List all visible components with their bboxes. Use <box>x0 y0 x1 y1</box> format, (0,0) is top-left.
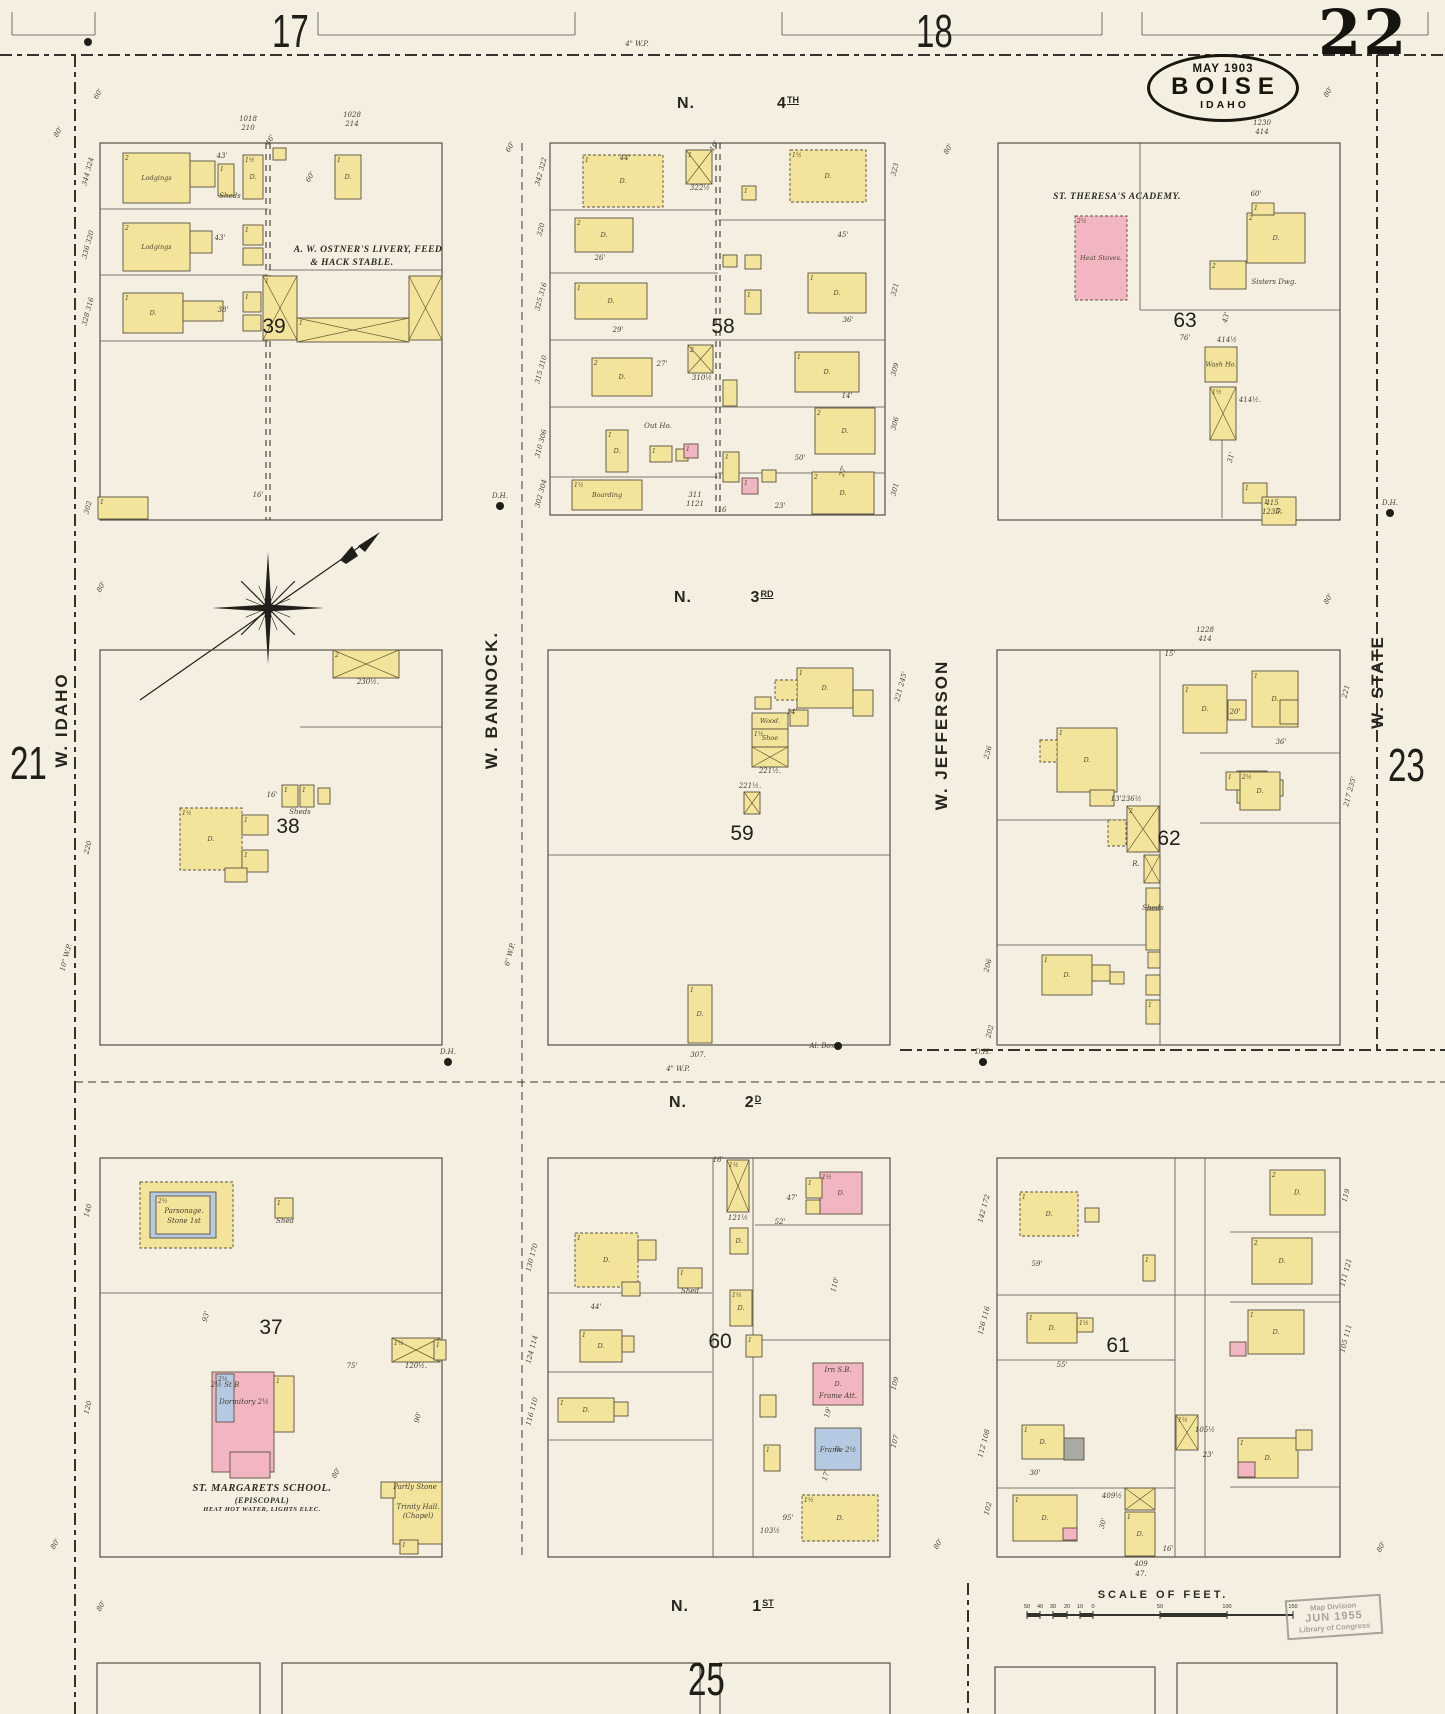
partial-lot-outline <box>1177 1663 1337 1714</box>
building-storey-tag: 1½ <box>1178 1417 1188 1424</box>
map-annotation: 60' <box>92 87 104 100</box>
map-annotation: 23' <box>1202 1451 1214 1459</box>
map-annotation: 17' <box>821 1469 832 1482</box>
compass-ray <box>241 608 268 635</box>
building <box>225 868 247 882</box>
building <box>1064 1438 1084 1460</box>
map-annotation: 110' <box>829 1276 841 1293</box>
st-margarets-school-note: HEAT HOT WATER, LIGHTS ELEC. <box>203 1506 320 1513</box>
building-label: D. <box>343 173 351 181</box>
building-storey-tag: 1 <box>1228 774 1232 781</box>
map-annotation: 80' <box>1375 1540 1387 1553</box>
map-annotation: 59' <box>1032 1260 1043 1268</box>
building <box>1040 740 1057 762</box>
street-label-n-3rd: 3RD <box>751 589 774 607</box>
map-annotation: 320 <box>535 221 546 237</box>
building <box>723 255 737 267</box>
map-annotation: 414 <box>1197 635 1211 643</box>
title-oval: MAY 1903 BOISE IDAHO <box>1147 54 1299 122</box>
building <box>1148 952 1160 968</box>
map-annotation: Frame Att. <box>818 1392 857 1400</box>
map-annotation: 16' <box>713 1156 724 1164</box>
building-label: Wood. <box>760 717 780 725</box>
building-storey-tag: 1 <box>766 1447 770 1454</box>
building-label: D. <box>1271 1328 1279 1336</box>
street-label-w-state: W. STATE <box>1368 635 1388 729</box>
map-annotation: Out Ho. <box>644 422 672 430</box>
building-storey-tag: 1½ <box>792 152 802 159</box>
building-storey-tag: 2 <box>1211 263 1216 270</box>
map-annotation: 415 <box>1264 499 1279 507</box>
building <box>638 1240 656 1260</box>
building-storey-tag: 1 <box>220 166 224 173</box>
map-annotation: Stone 1st <box>167 1217 201 1225</box>
map-annotation: 221½. <box>738 782 761 790</box>
map-annotation: 220 <box>82 839 94 855</box>
map-annotation: Sisters Dwg. <box>1251 278 1296 286</box>
map-annotation: 80' <box>52 125 64 138</box>
map-annotation: 2½ St B <box>210 1381 239 1389</box>
building-storey-tag: 1 <box>744 480 748 487</box>
map-annotation: 202 <box>984 1023 996 1039</box>
street-label-w-bannock: W. BANNOCK. <box>482 631 502 769</box>
building-storey-tag: 1½ <box>1079 1320 1089 1327</box>
map-annotation: 309 <box>889 361 900 377</box>
building-storey-tag: 1½ <box>822 1174 832 1181</box>
building-storey-tag: 1 <box>284 787 288 794</box>
building-storey-tag: 1 <box>436 1342 440 1349</box>
map-annotation: 30' <box>1030 1469 1041 1477</box>
map-annotation: 116 110 <box>524 1396 539 1427</box>
compass-ray <box>268 608 295 635</box>
building-label: D. <box>618 177 626 185</box>
map-annotation: Parsonage. <box>163 1207 203 1215</box>
building-label: D. <box>1082 756 1090 764</box>
building-label: D. <box>206 835 214 843</box>
building-storey-tag: 1 <box>100 499 104 506</box>
building-storey-tag: 1½ <box>245 157 255 164</box>
building-label: D. <box>581 1406 589 1414</box>
map-annotation: 414½. <box>1238 396 1261 404</box>
building <box>853 690 873 716</box>
map-annotation: 112 108 <box>976 1428 991 1459</box>
map-annotation: 322½ <box>690 184 710 192</box>
street-label-n-1st: 1ST <box>752 1598 773 1616</box>
building-label: D. <box>1255 787 1263 795</box>
map-annotation: 1228 <box>1196 626 1214 634</box>
adjacent-sheet-right: 23 <box>1388 742 1425 788</box>
map-annotation: 105 111 <box>1338 1323 1353 1353</box>
building <box>243 248 263 265</box>
map-annotation: 19' <box>823 1406 834 1419</box>
building-storey-tag: 1 <box>686 446 690 453</box>
building <box>98 497 148 519</box>
building-storey-tag: 1 <box>1148 1002 1152 1009</box>
building <box>622 1336 634 1352</box>
street-label-n-3rd-prefix: N. <box>674 589 692 607</box>
building <box>1063 1528 1077 1540</box>
street-label-w-jefferson: W. JEFFERSON <box>932 660 952 811</box>
building-storey-tag: 1 <box>1059 730 1063 737</box>
adjacent-sheet-top-left: 17 <box>272 8 309 54</box>
building-label: D. <box>596 1342 604 1350</box>
building-label: D. <box>833 1380 841 1388</box>
building-storey-tag: 2½ <box>1241 774 1252 781</box>
building-label: Lodgings <box>140 243 172 251</box>
building-storey-tag: 2 <box>813 474 818 481</box>
building-label: D. <box>1135 1530 1143 1538</box>
building-storey-tag: 1 <box>744 188 748 195</box>
ostner-stable-label-line2: & HACK STABLE. <box>310 258 393 268</box>
map-annotation: 80' <box>932 1537 944 1550</box>
building <box>1146 910 1160 950</box>
building <box>1110 972 1124 984</box>
map-annotation: Dormitory 2½ <box>218 1398 269 1406</box>
building-storey-tag: 1½ <box>804 1497 814 1504</box>
street-label-n-2d: 2D <box>745 1094 761 1112</box>
map-annotation: 1121 <box>686 500 704 508</box>
building-label: D. <box>840 427 848 435</box>
building-storey-tag: 1 <box>797 354 801 361</box>
building-storey-tag: 1 <box>608 432 612 439</box>
map-annotation: 142 172 <box>976 1193 991 1224</box>
map-annotation: 328 316 <box>80 296 95 327</box>
map-annotation: 23' <box>774 502 786 510</box>
compass-ray <box>241 581 268 608</box>
scale-bar-tick-label: 20 <box>1064 1604 1070 1610</box>
map-annotation: 102 <box>982 1500 993 1516</box>
library-date-stamp: Map Division JUN 1955 Library of Congres… <box>1285 1594 1384 1641</box>
north-needle-arrow <box>358 532 380 552</box>
building-storey-tag: 1 <box>1029 1315 1033 1322</box>
building <box>723 380 737 406</box>
map-annotation: 414½ <box>1216 336 1237 344</box>
map-annotation: 119 <box>1340 1187 1351 1203</box>
building-storey-tag: 2½ <box>157 1198 168 1205</box>
scale-bar-tick-label: 0 <box>1091 1604 1094 1610</box>
map-annotation: 43' <box>1221 311 1232 325</box>
scale-bar-segment <box>1027 1613 1040 1617</box>
map-annotation: 342 322 <box>533 156 548 187</box>
map-annotation: 80' <box>49 1537 61 1550</box>
map-annotation: 16' <box>708 139 720 152</box>
map-annotation: 90' <box>413 1411 424 1424</box>
map-annotation: 307. <box>690 1051 706 1059</box>
building-storey-tag: 2 <box>593 360 598 367</box>
building-storey-tag: 1 <box>577 1235 581 1242</box>
map-annotation: Shed <box>276 1217 294 1225</box>
building-label: D. <box>617 373 625 381</box>
building-storey-tag: 1 <box>337 157 341 164</box>
building-label: D. <box>1038 1438 1046 1446</box>
sanborn-map-sheet: Lodgings21D.1½D.1Lodgings21D.11111D.11D.… <box>0 0 1445 1714</box>
map-annotation: R. <box>1131 860 1140 868</box>
building-storey-tag: 1 <box>810 275 814 282</box>
map-annotation: 121½ <box>728 1214 748 1222</box>
map-annotation: 30' <box>1098 1517 1109 1530</box>
building-storey-tag: 1 <box>680 1270 684 1277</box>
building <box>1280 700 1298 724</box>
building-storey-tag: 1½ <box>754 731 764 738</box>
building <box>190 161 215 187</box>
building <box>1230 1342 1246 1356</box>
building-storey-tag: 1 <box>652 448 656 455</box>
building-storey-tag: 1 <box>245 294 249 301</box>
building <box>806 1200 820 1214</box>
map-annotation: 60' <box>304 170 316 183</box>
map-annotation: 80' <box>95 1599 107 1612</box>
building-storey-tag: 2 <box>1253 1240 1258 1247</box>
map-canvas: Lodgings21D.1½D.1Lodgings21D.11111D.11D.… <box>0 0 1445 1714</box>
map-annotation: 302 304 <box>533 478 548 508</box>
building-storey-tag: 1½ <box>394 1340 404 1347</box>
map-annotation: 75' <box>347 1362 358 1370</box>
building-label: Lodgings <box>140 174 172 182</box>
map-annotation: Partly Stone <box>392 1483 437 1491</box>
building-storey-tag: 2 <box>689 347 694 354</box>
block-number: 58 <box>711 315 734 338</box>
building-label: D. <box>1270 695 1278 703</box>
building-storey-tag: 1 <box>1250 1312 1254 1319</box>
building-storey-tag: 1 <box>1245 485 1249 492</box>
building-label: D. <box>823 172 831 180</box>
map-annotation: 221 245' <box>893 670 909 703</box>
partial-lot-outline <box>97 1663 260 1714</box>
map-annotation: 236 <box>982 744 994 760</box>
building-label: D. <box>838 489 846 497</box>
building-storey-tag: 2½ <box>1076 218 1087 225</box>
building <box>1085 1208 1099 1222</box>
map-annotation: 344 324 <box>80 156 95 186</box>
building <box>190 231 212 253</box>
map-annotation: 13'236½ <box>1111 795 1142 803</box>
map-annotation: 221½. <box>758 767 781 775</box>
building-label: D. <box>248 173 256 181</box>
scale-bar-tick-label: 30 <box>1050 1604 1056 1610</box>
north-needle-ornament <box>340 546 358 564</box>
street-label-n-4th-prefix: N. <box>677 95 695 113</box>
building-storey-tag: 1 <box>688 152 692 159</box>
map-annotation: 4" W.P. <box>665 1065 690 1073</box>
building-storey-tag: 1 <box>585 157 589 164</box>
map-annotation: 214 <box>344 120 358 128</box>
map-annotation: 310 306 <box>533 428 548 459</box>
map-annotation: 414 <box>1254 128 1268 136</box>
building-storey-tag: 1 <box>1022 1194 1026 1201</box>
building-storey-tag: 1 <box>747 292 751 299</box>
map-annotation: 26' <box>594 254 606 262</box>
block-outline <box>548 650 890 1045</box>
map-annotation: 409 <box>1133 1560 1148 1568</box>
st-margarets-school-label: ST. MARGARETS SCHOOL. <box>192 1483 331 1494</box>
hydrant-dot <box>84 38 92 46</box>
building <box>1092 965 1110 981</box>
map-annotation: 36' <box>843 316 854 324</box>
building-storey-tag: 1½ <box>1212 389 1222 396</box>
map-annotation: 93' <box>201 1310 212 1323</box>
map-annotation: Shed <box>681 1287 699 1295</box>
building-storey-tag: 1 <box>244 817 248 824</box>
building-label: D. <box>1263 1454 1271 1462</box>
map-annotation: 95' <box>783 1514 794 1522</box>
map-annotation: Frame 2½ <box>819 1446 857 1454</box>
street-label-n-1st-prefix: N. <box>671 1598 689 1616</box>
building-storey-tag: 1 <box>808 1180 812 1187</box>
building-label: D. <box>1271 234 1279 242</box>
map-annotation: 315 310 <box>533 354 548 385</box>
sheet-number: 22 <box>1318 2 1408 64</box>
building-storey-tag: 1 <box>748 1337 752 1344</box>
building-label: Heat Stoves. <box>1079 254 1122 262</box>
building <box>760 1395 776 1417</box>
building <box>230 1452 270 1478</box>
building-storey-tag: 1 <box>302 787 306 794</box>
map-annotation: Sheds <box>1142 904 1164 912</box>
map-annotation: Irn S.B. <box>824 1366 852 1374</box>
building-storey-tag: 1 <box>577 285 581 292</box>
block-number: 37 <box>259 1316 282 1339</box>
map-annotation: 47. <box>1134 1570 1146 1578</box>
building-storey-tag: 2 <box>124 225 129 232</box>
building-label: D. <box>820 684 828 692</box>
building-label: D. <box>599 231 607 239</box>
building-storey-tag: 2 <box>1128 808 1133 815</box>
hydrant-dot <box>834 1042 842 1050</box>
building-storey-tag: 1 <box>402 1542 406 1549</box>
map-annotation: 140 <box>82 1202 93 1218</box>
map-annotation: Trinity Hall. <box>397 1503 440 1511</box>
map-annotation: 325 316 <box>533 281 548 312</box>
block-outline <box>100 650 442 1045</box>
compass-ray <box>265 608 272 664</box>
map-annotation: 126 116 <box>976 1305 991 1336</box>
city-name: BOISE <box>1156 75 1296 99</box>
building <box>614 1402 628 1416</box>
block-number: 60 <box>708 1330 731 1353</box>
adjacent-sheet-left: 21 <box>10 740 47 786</box>
map-annotation: 60' <box>504 140 516 153</box>
map-annotation: 321 <box>889 282 900 297</box>
building-storey-tag: 1 <box>1185 687 1189 694</box>
building-storey-tag: 1 <box>1024 1427 1028 1434</box>
map-annotation: 45' <box>837 231 849 239</box>
scale-bar-tick-label: 50 <box>1024 1604 1030 1610</box>
building <box>1238 1462 1255 1477</box>
building-storey-tag: 1 <box>1254 205 1258 212</box>
building-storey-tag: 1½ <box>182 810 192 817</box>
block-number: 39 <box>262 315 285 338</box>
building-storey-tag: 1 <box>1240 1440 1244 1447</box>
building-storey-tag: 2 <box>816 410 821 417</box>
map-annotation: 4" W.P. <box>624 40 649 48</box>
scale-of-feet-label: SCALE OF FEET. <box>1098 1589 1229 1601</box>
compass-ray <box>268 605 324 612</box>
map-annotation: 20' <box>1229 708 1241 716</box>
map-annotation: 120 <box>82 1399 93 1415</box>
state-name: IDAHO <box>1153 99 1296 111</box>
map-annotation: 14' <box>842 392 853 400</box>
map-annotation: 306 <box>889 415 900 431</box>
building-storey-tag: 1 <box>245 227 249 234</box>
map-annotation: (Chapel) <box>403 1512 434 1520</box>
map-annotation: 15' <box>1165 650 1176 658</box>
building-storey-tag: 1½ <box>729 1162 739 1169</box>
map-annotation: 16' <box>1163 1545 1174 1553</box>
building-label: D. <box>1293 1189 1301 1197</box>
ostner-stable-label-line1: A. W. OSTNER'S LIVERY, FEED <box>294 245 443 255</box>
building <box>1296 1430 1312 1450</box>
street-label-n-2d-prefix: N. <box>669 1094 687 1112</box>
map-annotation: 1018 <box>239 115 257 123</box>
building <box>745 255 761 269</box>
adjacent-sheet-bottom: 25 <box>688 1656 725 1702</box>
map-annotation: 323 <box>889 161 900 177</box>
map-annotation: 6" W.P. <box>503 942 517 967</box>
map-annotation: 43' <box>216 152 228 160</box>
map-annotation: 109 <box>889 1375 900 1391</box>
map-annotation: 221 <box>1340 684 1351 700</box>
building-storey-tag: 1 <box>725 454 729 461</box>
scale-bar-segment <box>1160 1613 1227 1617</box>
building-storey-tag: 2 <box>1271 1172 1276 1179</box>
building-label: D. <box>148 309 156 317</box>
map-annotation: 107 <box>889 1433 900 1449</box>
street-label-n-4th: 4TH <box>777 95 799 113</box>
map-annotation: 16' <box>253 491 264 499</box>
map-annotation: 44' <box>590 1303 602 1311</box>
map-annotation: D.H. <box>1381 499 1398 507</box>
building-storey-tag: 2 <box>576 220 581 227</box>
map-annotation: 310½ <box>692 374 712 382</box>
building-storey-tag: 1 <box>582 1332 586 1339</box>
map-annotation: 120½. <box>405 1362 427 1370</box>
building-label: D. <box>1277 1257 1285 1265</box>
map-annotation: 230½. <box>356 678 379 686</box>
map-annotation: D.H. <box>439 1048 456 1056</box>
map-annotation: 111 121 <box>1338 1257 1353 1287</box>
block-number: 62 <box>1157 827 1180 850</box>
building-label: D. <box>1200 705 1208 713</box>
map-annotation: 50' <box>795 454 806 462</box>
building-label: D. <box>1040 1514 1048 1522</box>
building-storey-tag: 2 <box>334 652 339 659</box>
building <box>273 148 286 160</box>
map-annotation: 76' <box>1180 334 1191 342</box>
scale-bar-tick-label: 40 <box>1037 1604 1043 1610</box>
building-label: Boarding <box>591 491 622 499</box>
map-annotation: 217 235' <box>1342 775 1358 808</box>
building <box>318 788 330 804</box>
compass-ray <box>212 605 268 612</box>
building-label: D. <box>1047 1324 1055 1332</box>
building <box>1108 820 1126 846</box>
map-annotation: 52' <box>775 1218 786 1226</box>
map-annotation: 409½ <box>1101 1492 1122 1500</box>
hydrant-dot <box>1386 509 1394 517</box>
block-number: 63 <box>1173 309 1196 332</box>
building-storey-tag: 1½ <box>574 482 584 489</box>
building-storey-tag: 1 <box>1145 1257 1149 1264</box>
partial-lot-outline <box>282 1663 700 1714</box>
map-annotation: D.H. <box>974 1048 991 1056</box>
building-storey-tag: 1 <box>299 320 303 327</box>
map-annotation: 105½ <box>1195 1426 1215 1434</box>
map-annotation: 302 <box>82 499 93 515</box>
map-annotation: 103½ <box>760 1527 780 1535</box>
building-storey-tag: 2 <box>1248 215 1253 222</box>
map-annotation: 60' <box>1251 190 1262 198</box>
building-label: D. <box>832 289 840 297</box>
